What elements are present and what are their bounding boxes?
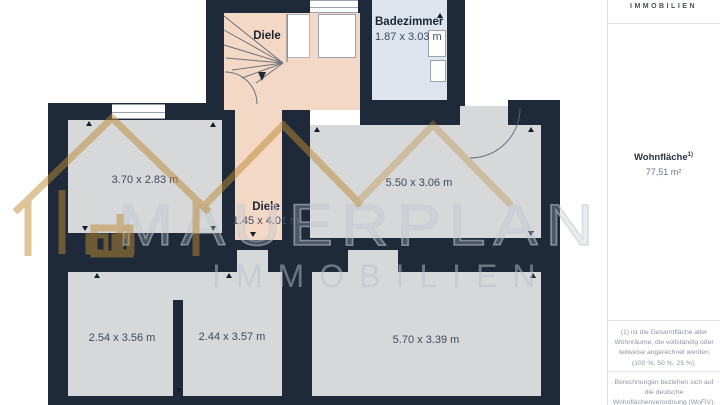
footnote-marker: 1) (688, 152, 693, 158)
divider (607, 320, 720, 321)
living-area-label: Wohnfläche1) (607, 152, 720, 163)
living-area-value: 77,51 m² (607, 167, 720, 177)
living-area-block: Wohnfläche1) 77,51 m² (607, 152, 720, 177)
stair-shaft (318, 14, 356, 58)
sidebar-divider (607, 0, 608, 405)
room-label: Badezimmer (375, 16, 443, 29)
dimension-arrow-icon (82, 226, 88, 231)
dimension-arrow-icon (176, 388, 182, 393)
floorplan-page: Diele Badezimmer 1.87 x 3.03 m 3.70 x 2.… (0, 0, 720, 405)
brand-logo-text: IMMOBILIEN (607, 3, 720, 10)
window-icon (112, 104, 165, 119)
room-label: Diele (237, 30, 297, 43)
wall-segment (48, 396, 560, 405)
living-area-label-text: Wohnfläche (634, 152, 688, 163)
divider (607, 371, 720, 372)
wall-divider (173, 300, 183, 396)
footnote-2: Berechnungen beziehen sich auf die deuts… (612, 378, 716, 405)
wall-segment (447, 0, 465, 106)
room-middle-right-alcove (460, 106, 508, 128)
info-sidebar: IMMOBILIEN Wohnfläche1) 77,51 m² (1) ist… (600, 0, 720, 405)
dimension-arrow-icon (94, 273, 100, 278)
room-dimension-label: 1.87 x 3.03 m (375, 31, 442, 44)
footnote-1: (1) ist die Gesamtfläche aller Wohnräume… (612, 328, 716, 369)
sink-icon (430, 60, 446, 82)
room-dimension-label: 5.70 x 3.39 m (356, 334, 496, 347)
divider (607, 23, 720, 24)
window-icon (310, 0, 358, 13)
room-dimension-label: 5.50 x 3.06 m (349, 177, 489, 190)
room-dimension-label: 2.44 x 3.57 m (162, 331, 302, 344)
watermark-title: MAUERPLAN (118, 192, 601, 259)
dimension-arrow-icon (528, 127, 534, 132)
room-dimension-label: 3.70 x 2.83 m (75, 174, 215, 187)
watermark-subtitle: IMMOBILIEN (212, 258, 550, 295)
dimension-arrow-icon (86, 121, 92, 126)
dimension-arrow-icon (314, 127, 320, 132)
dimension-arrow-icon (210, 122, 216, 127)
